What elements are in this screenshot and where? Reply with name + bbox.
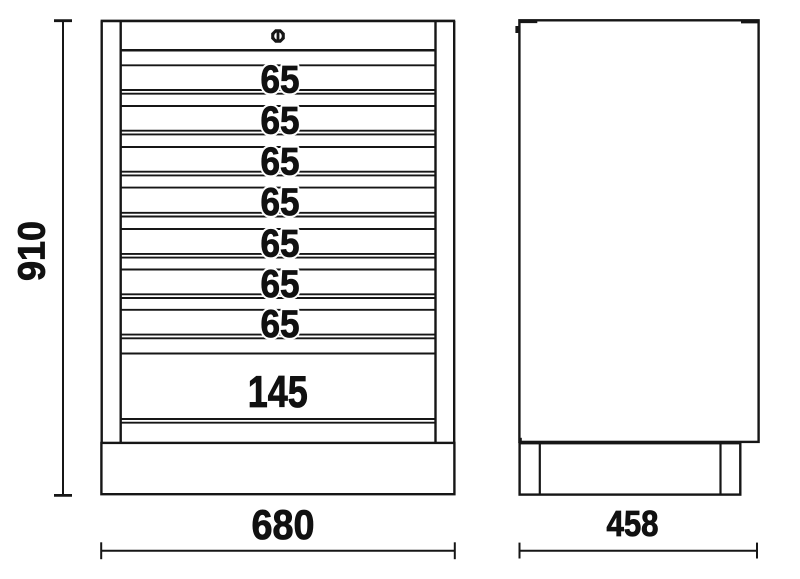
svg-text:65: 65 — [261, 263, 300, 306]
svg-text:65: 65 — [261, 99, 300, 142]
svg-text:65: 65 — [261, 181, 300, 224]
svg-text:65: 65 — [261, 222, 300, 265]
svg-text:65: 65 — [261, 59, 300, 102]
svg-text:65: 65 — [261, 140, 300, 183]
svg-text:145: 145 — [248, 368, 308, 417]
svg-text:680: 680 — [252, 501, 315, 548]
svg-text:910: 910 — [12, 221, 54, 281]
svg-text:65: 65 — [261, 303, 300, 346]
svg-text:458: 458 — [607, 503, 659, 544]
